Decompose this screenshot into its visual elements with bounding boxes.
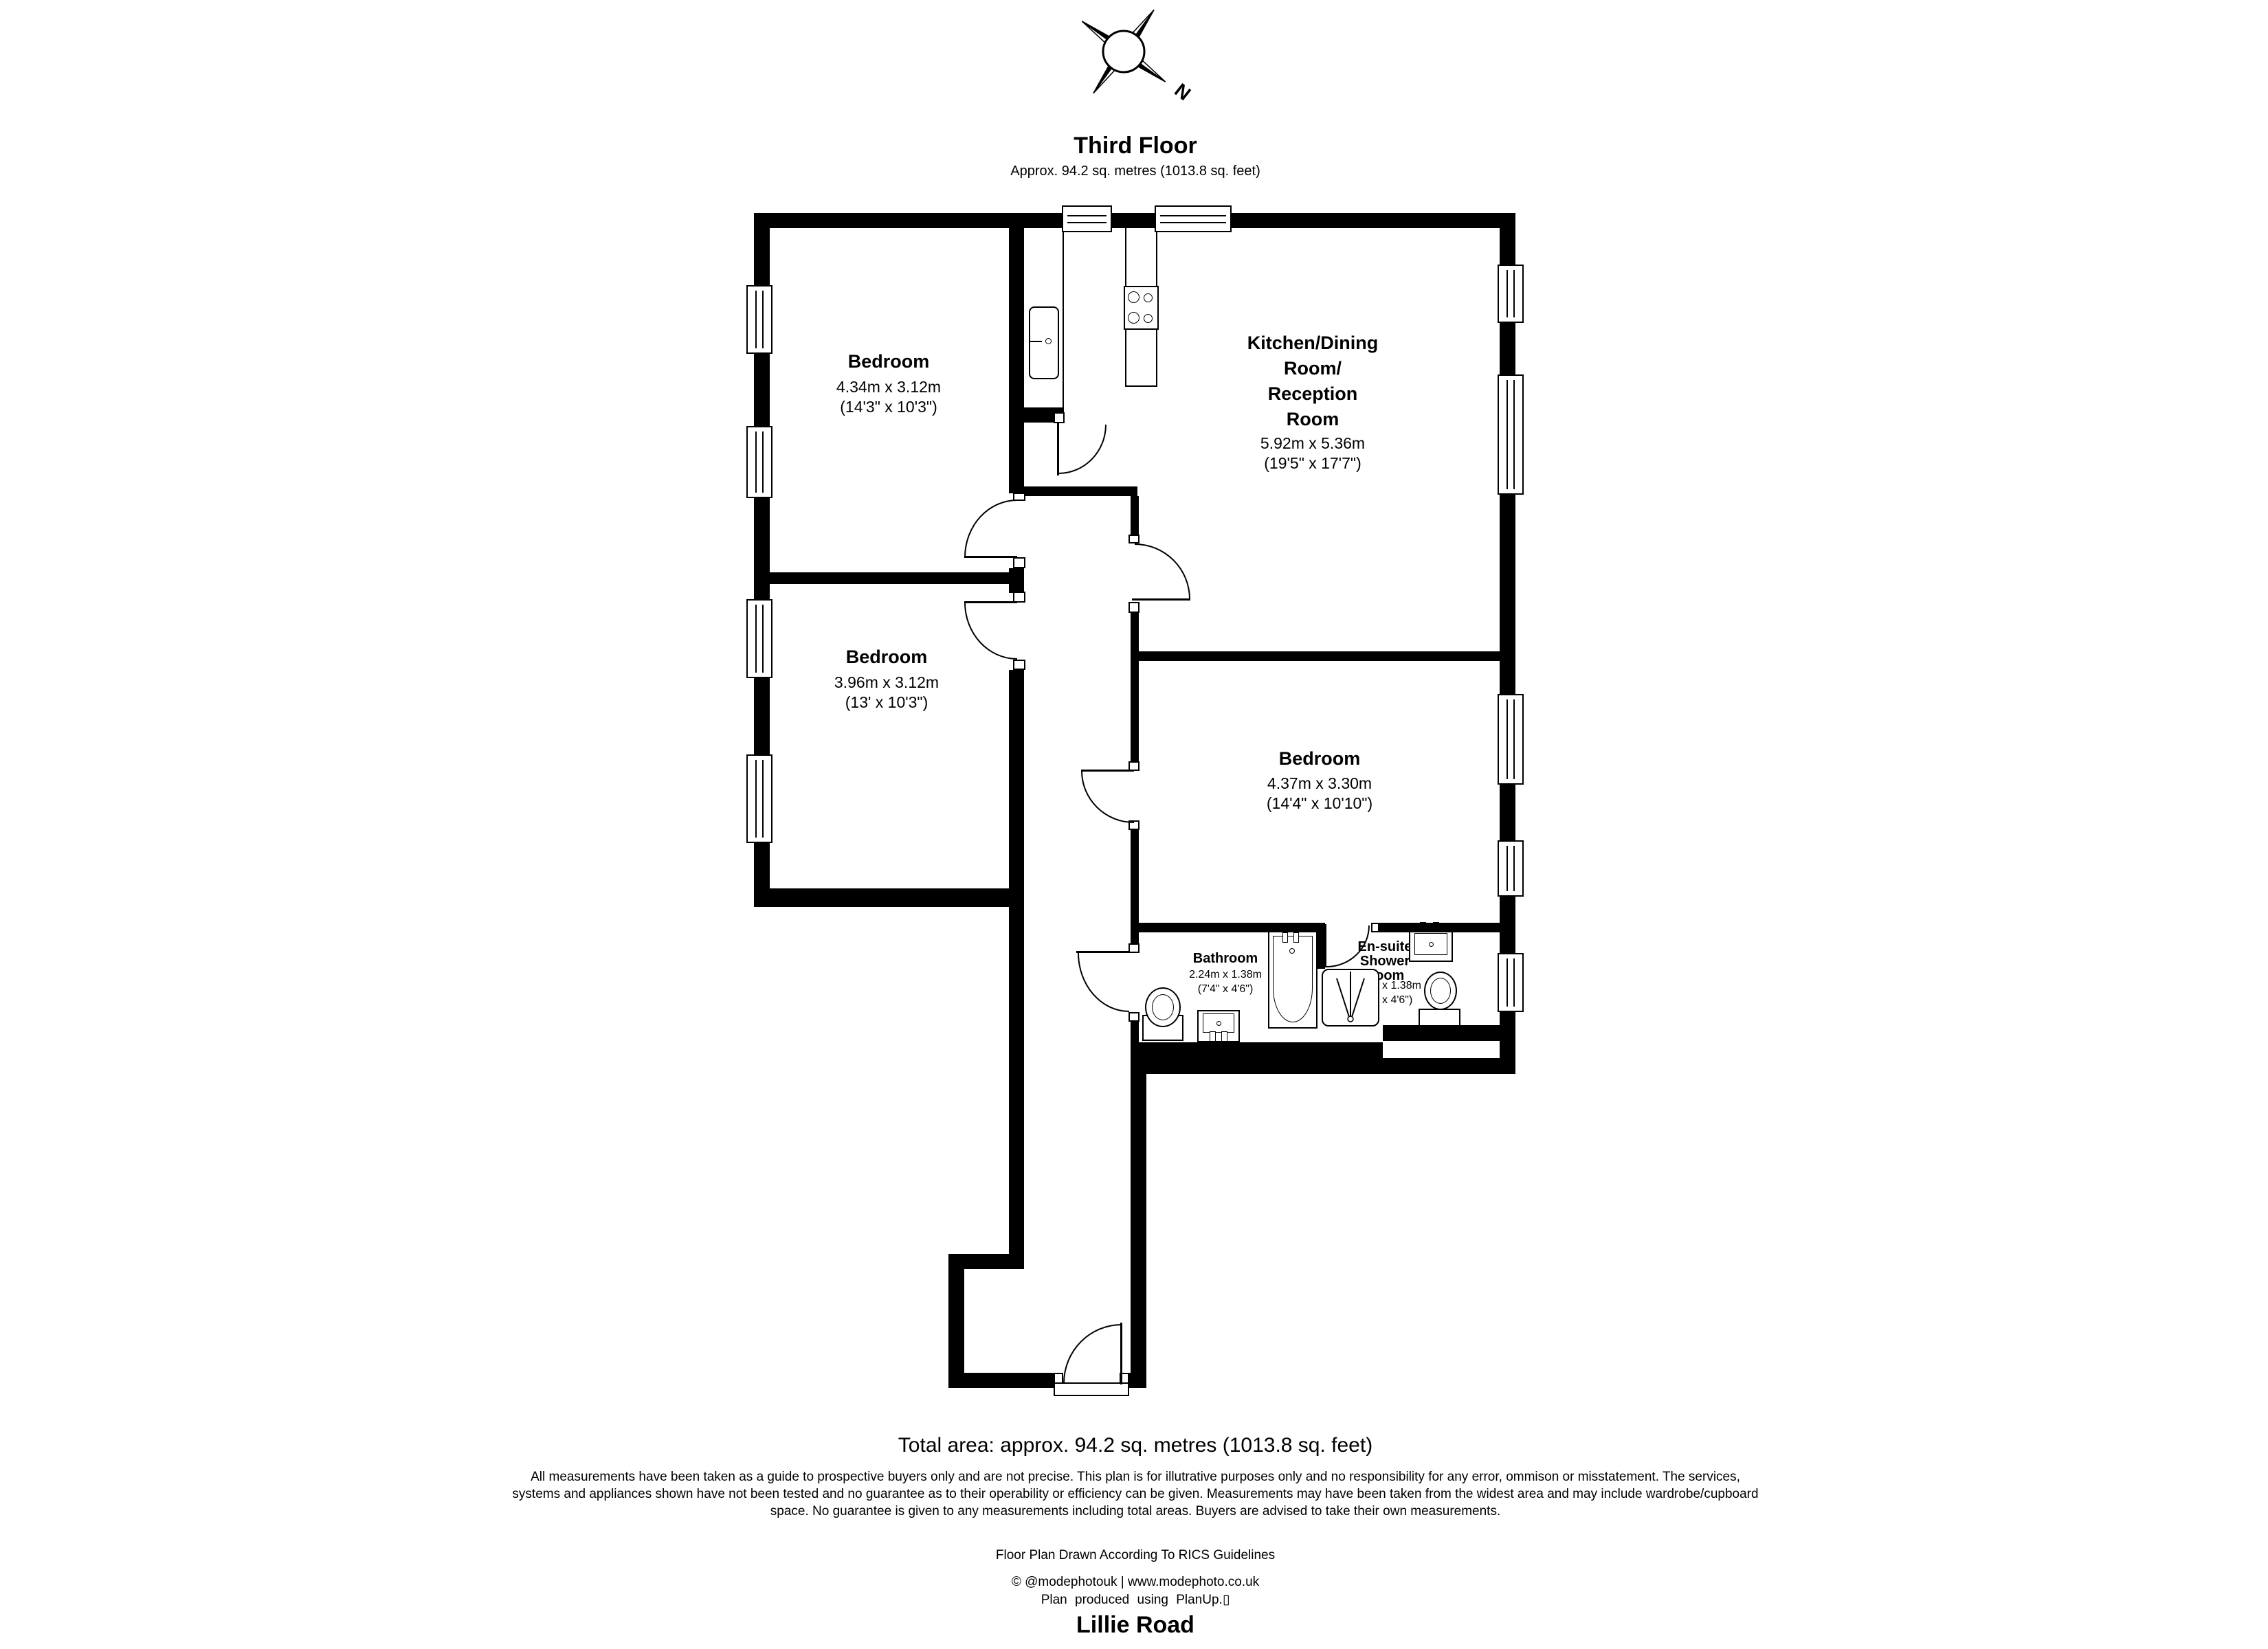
- wall-segment: [1383, 1025, 1500, 1041]
- room-dim-imperial: (7'4" x 4'6"): [1198, 982, 1254, 996]
- door-leaf: [1132, 598, 1190, 601]
- window-glazing: [1507, 846, 1515, 891]
- door-leaf: [1081, 770, 1134, 772]
- room-dim-metric: 4.34m x 3.12m: [836, 377, 941, 397]
- kitchen-hob: [1124, 286, 1159, 330]
- window-glazing: [755, 291, 764, 348]
- window-glazing: [755, 605, 764, 673]
- wall-segment: [1500, 213, 1515, 265]
- wall-segment: [1131, 496, 1139, 536]
- wall-segment: [1139, 923, 1318, 932]
- compass-rose-icon: N: [1062, 0, 1199, 113]
- hob-burner: [1128, 291, 1139, 303]
- room-dim-imperial: (14'3" x 10'3"): [840, 397, 937, 417]
- street-address: Lillie Road: [1076, 1612, 1194, 1639]
- door-jamb: [1129, 943, 1139, 953]
- door-leaf: [964, 601, 1017, 603]
- wall-segment: [1009, 888, 1024, 1269]
- hob-burner: [1128, 312, 1139, 324]
- wall-segment: [754, 498, 770, 599]
- wall-segment: [1131, 830, 1139, 945]
- credit-text: © @modephotouk | www.modephoto.co.uk: [1012, 1575, 1259, 1590]
- wall-segment: [1009, 423, 1024, 493]
- wall-segment: [754, 354, 770, 426]
- room-name-line2: Shower: [1360, 954, 1410, 969]
- wall-segment: [948, 1254, 964, 1388]
- wall-segment: [1131, 1074, 1146, 1388]
- wall-segment: [754, 213, 770, 285]
- wall-segment: [754, 678, 770, 754]
- bathroom-sink-tap-icon: [1221, 1031, 1227, 1042]
- window: [1498, 840, 1524, 897]
- ensuite-toilet-cistern: [1419, 1009, 1460, 1027]
- door-leaf: [1057, 423, 1059, 475]
- door-leaf: [1120, 1323, 1122, 1384]
- wall-segment: [1139, 651, 1515, 661]
- wall-segment: [1009, 670, 1024, 888]
- room-dim-metric: 2.24m x 1.38m: [1189, 967, 1262, 982]
- wall-segment: [754, 213, 1515, 228]
- door-jamb: [1013, 557, 1025, 568]
- wall-segment: [754, 888, 1009, 907]
- room-dim-imperial: (13' x 10'3"): [845, 693, 929, 713]
- door-jamb: [1371, 923, 1379, 932]
- window-glazing: [755, 431, 764, 493]
- door-jamb: [1129, 602, 1139, 613]
- door-arc-reception: [1135, 543, 1190, 599]
- room-dim-imperial: (14'4" x 10'10"): [1267, 794, 1372, 814]
- wall-segment: [948, 1373, 1054, 1388]
- door-jamb: [1013, 660, 1025, 670]
- bathtub-tap-icon: [1282, 932, 1288, 943]
- rics-guidelines-text: Floor Plan Drawn According To RICS Guide…: [996, 1548, 1275, 1563]
- room-dim-metric: 4.37m x 3.30m: [1267, 774, 1372, 794]
- door-arc-bedroom-right: [1081, 771, 1134, 823]
- window-glazing: [1507, 699, 1515, 779]
- room-name-line2: Room/: [1284, 356, 1342, 381]
- bathroom-sink-drain: [1216, 1021, 1221, 1026]
- disclaimer-line-2: systems and appliances shown have not be…: [512, 1487, 1758, 1502]
- wall-segment: [1009, 568, 1024, 593]
- door-jamb: [1054, 412, 1065, 423]
- disclaimer-line-3: space. No guarantee is given to any meas…: [770, 1504, 1500, 1519]
- wall-segment: [770, 572, 1022, 584]
- wall-segment: [1500, 495, 1515, 694]
- floor-area-subtitle: Approx. 94.2 sq. metres (1013.8 sq. feet…: [1010, 164, 1260, 179]
- window: [1498, 265, 1524, 323]
- hob-burner: [1144, 314, 1153, 323]
- wall-segment: [1500, 785, 1515, 840]
- ensuite-toilet-bowl: [1430, 978, 1451, 1004]
- room-name-line3: Reception: [1268, 381, 1358, 407]
- window-glazing: [755, 760, 764, 838]
- window: [746, 599, 772, 678]
- door-arc-bedroom-top-left: [964, 500, 1017, 557]
- door-leaf: [1076, 951, 1129, 953]
- window-glazing: [1507, 270, 1515, 317]
- window: [746, 426, 772, 498]
- wall-segment: [1129, 1373, 1146, 1388]
- room-dim-metric: 5.92m x 5.36m: [1260, 434, 1365, 453]
- bathtub-drain: [1289, 948, 1295, 954]
- window: [1062, 205, 1112, 232]
- floor-title: Third Floor: [1074, 133, 1197, 159]
- window: [746, 754, 772, 843]
- wall-segment: [1500, 323, 1515, 374]
- room-name-line1: Kitchen/Dining: [1247, 330, 1379, 356]
- door-arc-bedroom-mid-left: [964, 603, 1017, 660]
- window: [1498, 953, 1524, 1012]
- door-jamb: [1129, 1012, 1139, 1022]
- window-glazing: [1067, 215, 1107, 223]
- room-name: Bedroom: [1279, 746, 1361, 772]
- wall-segment: [1500, 897, 1515, 953]
- wall-segment: [1131, 1042, 1383, 1074]
- room-name: Bedroom: [848, 349, 930, 374]
- bathroom-sink-tap-icon: [1210, 1031, 1216, 1042]
- entrance-threshold: [1054, 1382, 1129, 1396]
- window: [1498, 374, 1524, 495]
- door-arc-kitchen: [1058, 425, 1107, 474]
- door-arc-bathroom: [1078, 953, 1129, 1012]
- door-arc-entrance: [1063, 1324, 1122, 1383]
- room-name: Bedroom: [846, 644, 928, 670]
- door-jamb: [1129, 535, 1139, 543]
- room-name: Bathroom: [1193, 952, 1258, 966]
- door-leaf: [964, 556, 1017, 558]
- window: [746, 285, 772, 354]
- produced-with-text: Plan produced using PlanUp.▯: [1041, 1592, 1230, 1608]
- total-area-text: Total area: approx. 94.2 sq. metres (101…: [898, 1434, 1372, 1457]
- kitchen-sink: [1029, 306, 1059, 379]
- wall-segment: [1383, 1058, 1515, 1074]
- room-dim-imperial: (19'5" x 17'7"): [1264, 453, 1361, 473]
- hob-burner: [1144, 293, 1153, 302]
- door-leaf: [1324, 924, 1326, 967]
- window-glazing: [1160, 215, 1226, 223]
- bathtub-tap-icon: [1293, 932, 1299, 943]
- wall-segment: [1378, 923, 1515, 932]
- shower-tray-lines: [1322, 969, 1379, 1027]
- kitchen-sink-tap-icon: [1030, 341, 1042, 342]
- wall-segment: [1009, 228, 1024, 411]
- ensuite-sink-drain: [1429, 942, 1434, 947]
- wall-segment: [1131, 1022, 1139, 1042]
- window-glazing: [1507, 958, 1515, 1007]
- floor-plan-canvas: N Third Floor Approx. 94.2 sq. metres (1…: [0, 0, 2268, 1649]
- wall-segment: [1024, 486, 1137, 496]
- compass-north-label: N: [1170, 79, 1194, 104]
- window: [1155, 205, 1232, 232]
- room-dim-metric: 3.96m x 3.12m: [834, 673, 939, 693]
- wall-segment: [1131, 613, 1139, 763]
- bathroom-toilet-bowl: [1152, 994, 1174, 1020]
- disclaimer-line-1: All measurements have been taken as a gu…: [531, 1470, 1740, 1485]
- room-name-line4: Room: [1287, 407, 1339, 432]
- window: [1498, 694, 1524, 785]
- window-glazing: [1507, 380, 1515, 489]
- kitchen-sink-drain: [1045, 338, 1052, 344]
